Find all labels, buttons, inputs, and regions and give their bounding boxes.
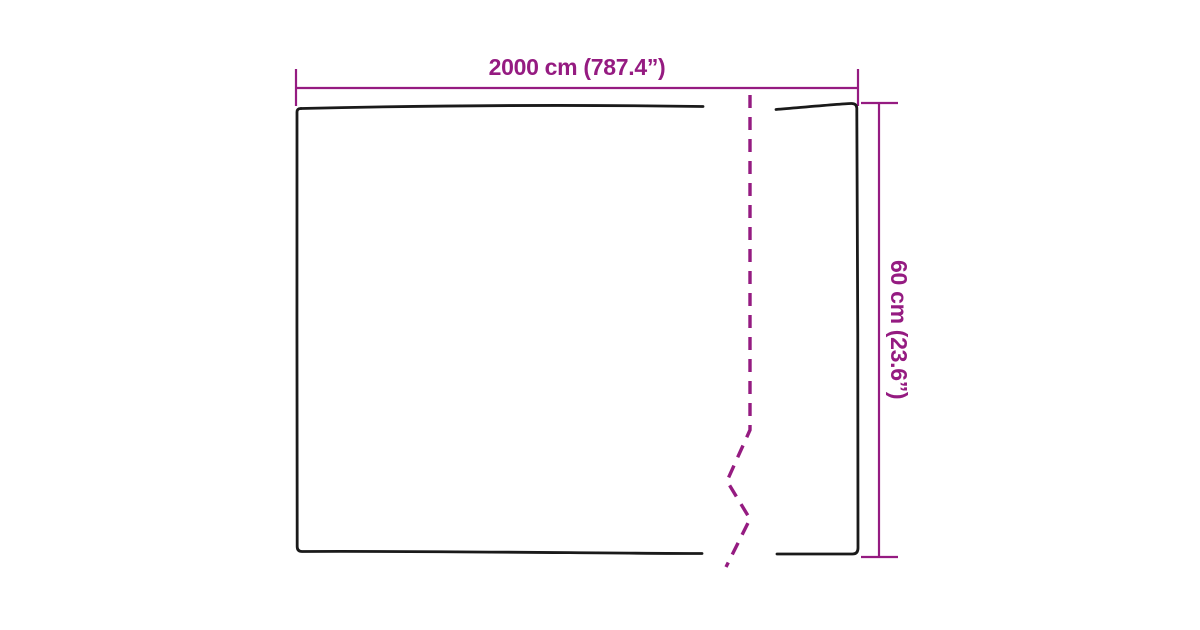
sheet-outline-top-left-segment — [301, 105, 703, 108]
sheet-outline-right-segment — [776, 103, 858, 554]
fold-dashed-line — [726, 95, 750, 567]
sheet-outline — [297, 103, 858, 554]
width-dimension-label: 2000 cm (787.4”) — [296, 54, 858, 81]
sheet-outline-left-segment — [297, 109, 702, 554]
diagram-canvas — [0, 0, 1200, 630]
dimension-diagram: 2000 cm (787.4”) 60 cm (23.6”) — [0, 0, 1200, 630]
height-dimension-label: 60 cm (23.6”) — [882, 103, 912, 557]
